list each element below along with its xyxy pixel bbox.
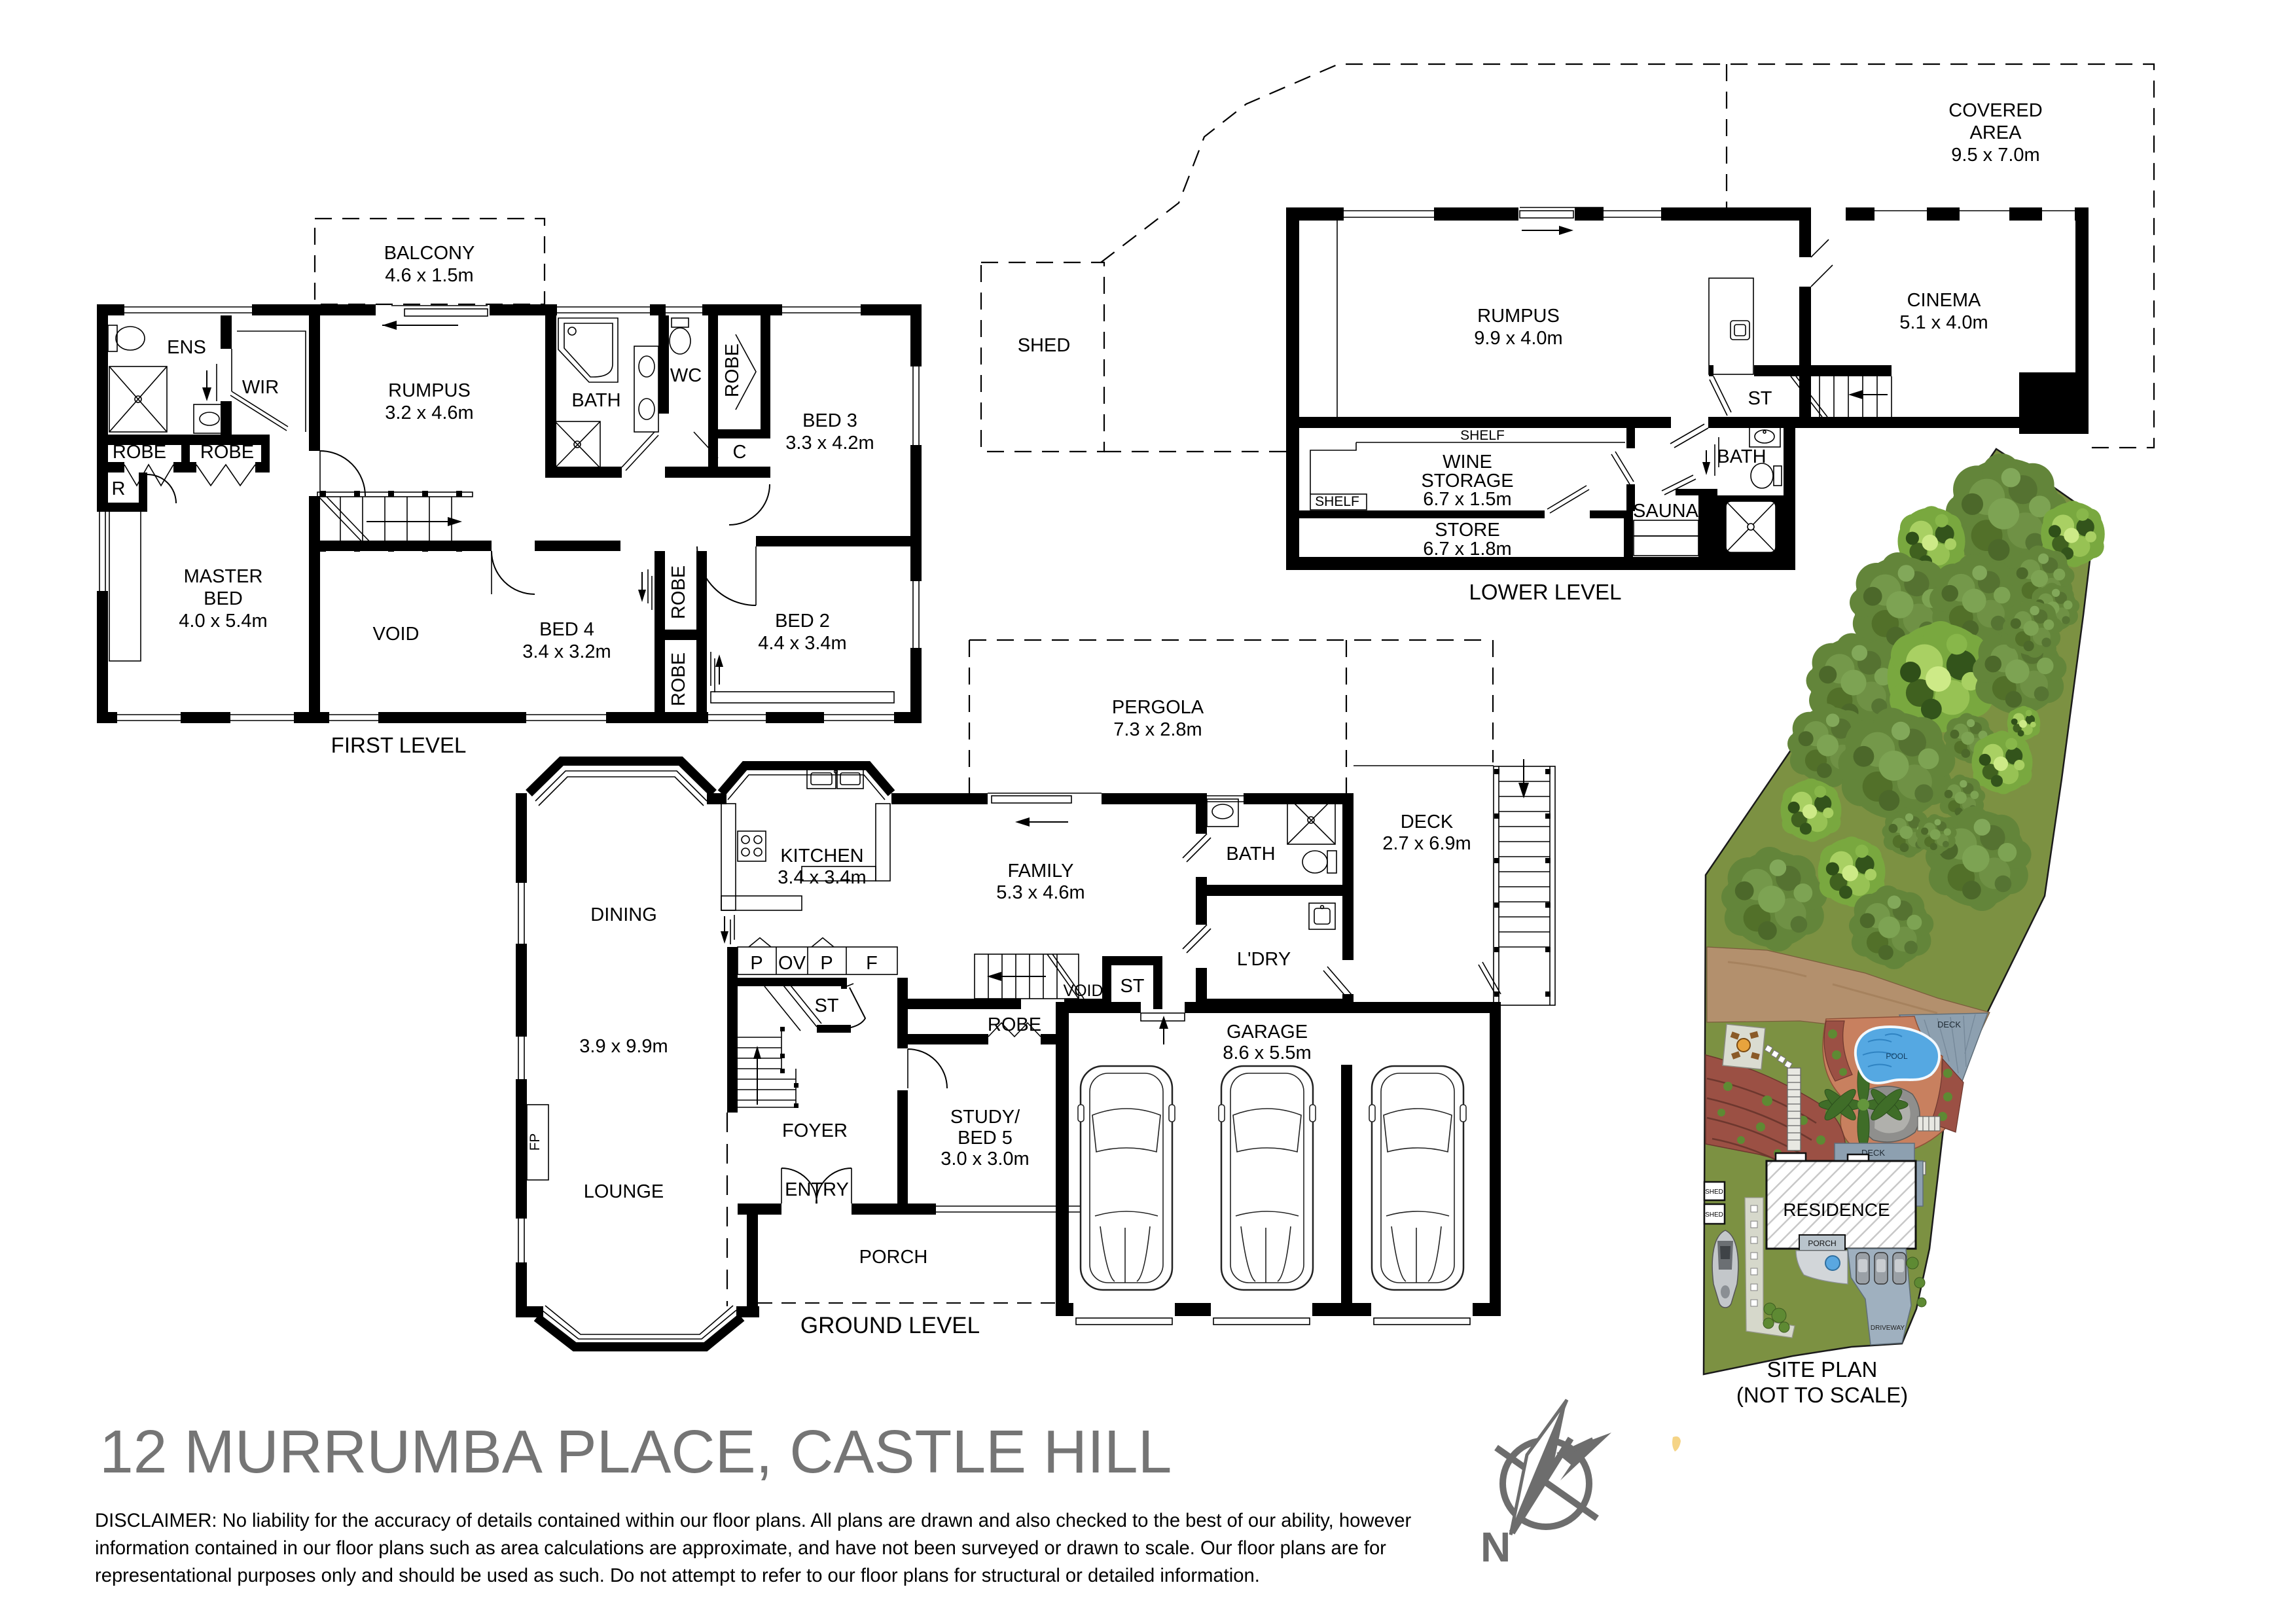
svg-text:7.3 x 2.8m: 7.3 x 2.8m — [1113, 719, 1202, 740]
svg-text:R: R — [112, 478, 126, 499]
svg-text:6.7 x 1.8m: 6.7 x 1.8m — [1423, 539, 1511, 560]
svg-text:DRIVEWAY: DRIVEWAY — [1871, 1325, 1905, 1332]
svg-text:5.3 x 4.6m: 5.3 x 4.6m — [996, 882, 1085, 903]
svg-text:VOID: VOID — [373, 624, 420, 645]
svg-text:6.7 x 1.5m: 6.7 x 1.5m — [1423, 489, 1511, 510]
svg-text:FAMILY: FAMILY — [1008, 861, 1074, 882]
svg-text:WIR: WIR — [242, 377, 279, 398]
svg-text:information contained in our f: information contained in our floor plans… — [95, 1538, 1386, 1559]
svg-text:STORE: STORE — [1435, 520, 1499, 541]
svg-text:4.0 x 5.4m: 4.0 x 5.4m — [179, 611, 267, 632]
svg-text:SAUNA: SAUNA — [1633, 501, 1699, 522]
svg-text:9.9 x 4.0m: 9.9 x 4.0m — [1474, 328, 1562, 349]
svg-text:WC: WC — [670, 365, 702, 386]
svg-text:ROBE: ROBE — [200, 442, 254, 463]
svg-text:3.4 x 3.2m: 3.4 x 3.2m — [522, 641, 611, 662]
svg-text:ROBE: ROBE — [722, 344, 743, 397]
svg-text:GROUND LEVEL: GROUND LEVEL — [800, 1313, 980, 1338]
svg-text:ROBE: ROBE — [113, 442, 166, 463]
svg-text:FP: FP — [528, 1133, 543, 1151]
svg-text:FIRST LEVEL: FIRST LEVEL — [331, 733, 467, 757]
svg-text:AREA: AREA — [1970, 122, 2022, 143]
svg-text:RESIDENCE: RESIDENCE — [1783, 1200, 1890, 1220]
svg-text:PERGOLA: PERGOLA — [1112, 697, 1204, 718]
svg-text:DECK: DECK — [1401, 811, 1454, 832]
svg-text:BED 4: BED 4 — [539, 619, 594, 640]
svg-text:(NOT TO SCALE): (NOT TO SCALE) — [1736, 1383, 1908, 1407]
svg-text:BATH: BATH — [571, 390, 620, 411]
svg-text:PORCH: PORCH — [859, 1247, 928, 1268]
svg-text:P: P — [750, 953, 762, 974]
svg-text:KITCHEN: KITCHEN — [780, 846, 863, 866]
svg-text:ROBE: ROBE — [988, 1014, 1041, 1035]
svg-text:COVERED: COVERED — [1948, 100, 2042, 121]
svg-text:MASTER: MASTER — [184, 566, 263, 587]
svg-text:3.3 x 4.2m: 3.3 x 4.2m — [785, 433, 874, 454]
svg-text:SHELF: SHELF — [1460, 428, 1505, 443]
svg-text:ROBE: ROBE — [668, 565, 689, 619]
svg-text:DINING: DINING — [590, 904, 657, 925]
svg-text:GARAGE: GARAGE — [1227, 1022, 1308, 1043]
svg-text:4.4 x 3.4m: 4.4 x 3.4m — [758, 633, 846, 654]
svg-text:N: N — [1480, 1524, 1511, 1571]
svg-text:LOUNGE: LOUNGE — [584, 1181, 664, 1202]
svg-text:ENS: ENS — [167, 337, 206, 358]
svg-text:3.4 x 3.4m: 3.4 x 3.4m — [778, 867, 866, 888]
svg-text:LOWER LEVEL: LOWER LEVEL — [1469, 580, 1622, 604]
svg-text:DISCLAIMER: No liability for t: DISCLAIMER: No liability for the accurac… — [95, 1510, 1411, 1531]
svg-text:BED 2: BED 2 — [775, 611, 830, 632]
svg-text:RUMPUS: RUMPUS — [388, 380, 471, 401]
svg-text:ENTRY: ENTRY — [785, 1179, 849, 1200]
svg-text:PORCH: PORCH — [1808, 1239, 1836, 1248]
svg-text:STUDY/: STUDY/ — [950, 1107, 1020, 1128]
svg-text:12 MURRUMBA PLACE, CASTLE HILL: 12 MURRUMBA PLACE, CASTLE HILL — [99, 1418, 1172, 1486]
svg-text:BATH: BATH — [1717, 446, 1766, 467]
svg-text:3.9 x 9.9m: 3.9 x 9.9m — [579, 1036, 668, 1057]
svg-text:BATH: BATH — [1226, 844, 1275, 865]
svg-text:C: C — [733, 442, 747, 463]
svg-text:POOL: POOL — [1886, 1052, 1908, 1061]
svg-text:ST: ST — [1120, 976, 1144, 997]
svg-text:DECK: DECK — [1937, 1020, 1961, 1029]
svg-text:8.6 x 5.5m: 8.6 x 5.5m — [1223, 1043, 1311, 1063]
svg-text:SHED: SHED — [1705, 1211, 1723, 1219]
svg-text:RUMPUS: RUMPUS — [1477, 306, 1560, 327]
svg-text:P: P — [820, 953, 833, 974]
svg-text:representational purposes only: representational purposes only and shoul… — [95, 1565, 1260, 1586]
svg-text:BALCONY: BALCONY — [384, 243, 475, 264]
svg-text:CINEMA: CINEMA — [1907, 290, 1981, 311]
svg-text:BED: BED — [204, 588, 243, 609]
svg-text:5.1 x 4.0m: 5.1 x 4.0m — [1899, 312, 1988, 333]
svg-text:FOYER: FOYER — [782, 1120, 848, 1141]
svg-text:2.7 x 6.9m: 2.7 x 6.9m — [1382, 833, 1471, 854]
svg-text:4.6 x 1.5m: 4.6 x 1.5m — [385, 265, 473, 286]
svg-text:WINE: WINE — [1443, 452, 1492, 473]
svg-text:ST: ST — [814, 995, 838, 1016]
svg-text:OV: OV — [778, 953, 806, 974]
svg-text:9.5 x 7.0m: 9.5 x 7.0m — [1951, 145, 2039, 166]
svg-text:SHELF: SHELF — [1315, 494, 1359, 509]
svg-text:BED 5: BED 5 — [958, 1128, 1013, 1149]
svg-text:SITE PLAN: SITE PLAN — [1767, 1357, 1878, 1382]
svg-text:3.2 x 4.6m: 3.2 x 4.6m — [385, 402, 473, 423]
svg-text:SHED: SHED — [1018, 335, 1071, 356]
svg-text:F: F — [866, 953, 878, 974]
svg-text:ST: ST — [1748, 388, 1772, 409]
svg-text:L'DRY: L'DRY — [1237, 949, 1291, 970]
svg-text:VOID: VOID — [1063, 982, 1103, 1000]
svg-text:BED 3: BED 3 — [802, 410, 857, 431]
svg-text:SHED: SHED — [1705, 1188, 1723, 1196]
svg-text:3.0 x 3.0m: 3.0 x 3.0m — [941, 1149, 1029, 1169]
svg-text:ROBE: ROBE — [668, 652, 689, 706]
